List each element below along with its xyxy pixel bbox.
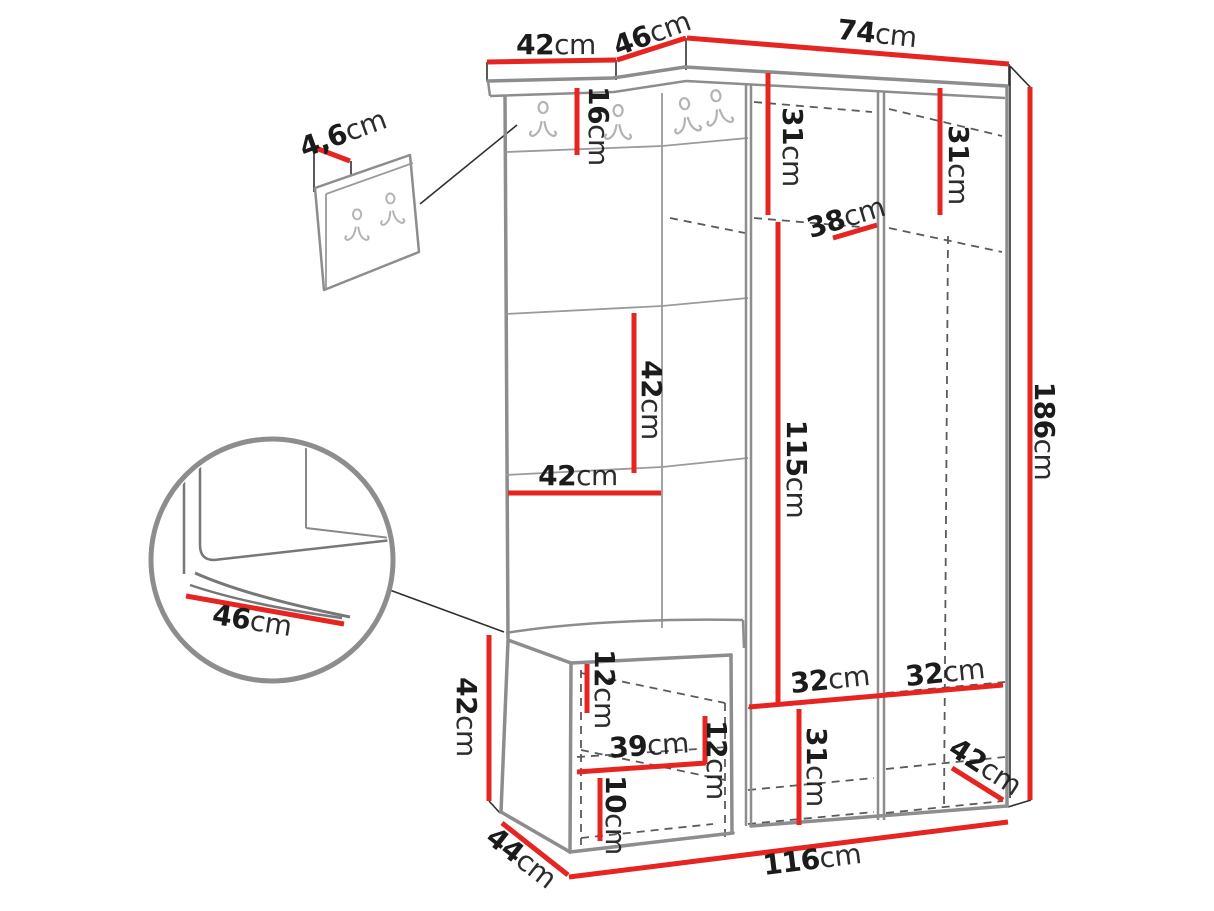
dim-right-door-top-height: 31cm xyxy=(944,125,972,205)
dim-right-bottom-width: 32cm xyxy=(904,655,986,691)
dim-bottom-drawer-height: 31cm xyxy=(802,727,830,807)
dim-left-door-top-height: 31cm xyxy=(778,107,806,187)
dim-left-bottom-width: 32cm xyxy=(789,662,871,698)
dim-panel-segment-height: 42cm xyxy=(637,360,665,440)
dimension-diagram: 42cm 46cm 74cm 4,6cm 16cm 31cm 31cm 38cm… xyxy=(0,0,1214,911)
dim-hook-rail-height: 16cm xyxy=(584,86,612,166)
dim-total-height: 186cm xyxy=(1030,382,1058,481)
seat-detail-circle xyxy=(151,439,393,681)
extension-lines xyxy=(314,38,1031,813)
dim-door-height: 115cm xyxy=(782,420,810,519)
dim-panel-top-width: 42cm xyxy=(516,31,596,59)
dim-bench-bottom-gap: 10cm xyxy=(601,775,629,855)
dim-bench-inner-width: 39cm xyxy=(608,729,689,762)
dim-bench-top-gap: 12cm xyxy=(590,649,618,729)
dim-bench-height: 42cm xyxy=(452,677,480,757)
main-unit-outline xyxy=(488,67,1007,826)
dim-bench-shelf-gap: 12cm xyxy=(702,720,730,800)
dim-wardrobe-top-width: 74cm xyxy=(836,16,918,52)
dim-panel-width: 42cm xyxy=(538,462,618,490)
